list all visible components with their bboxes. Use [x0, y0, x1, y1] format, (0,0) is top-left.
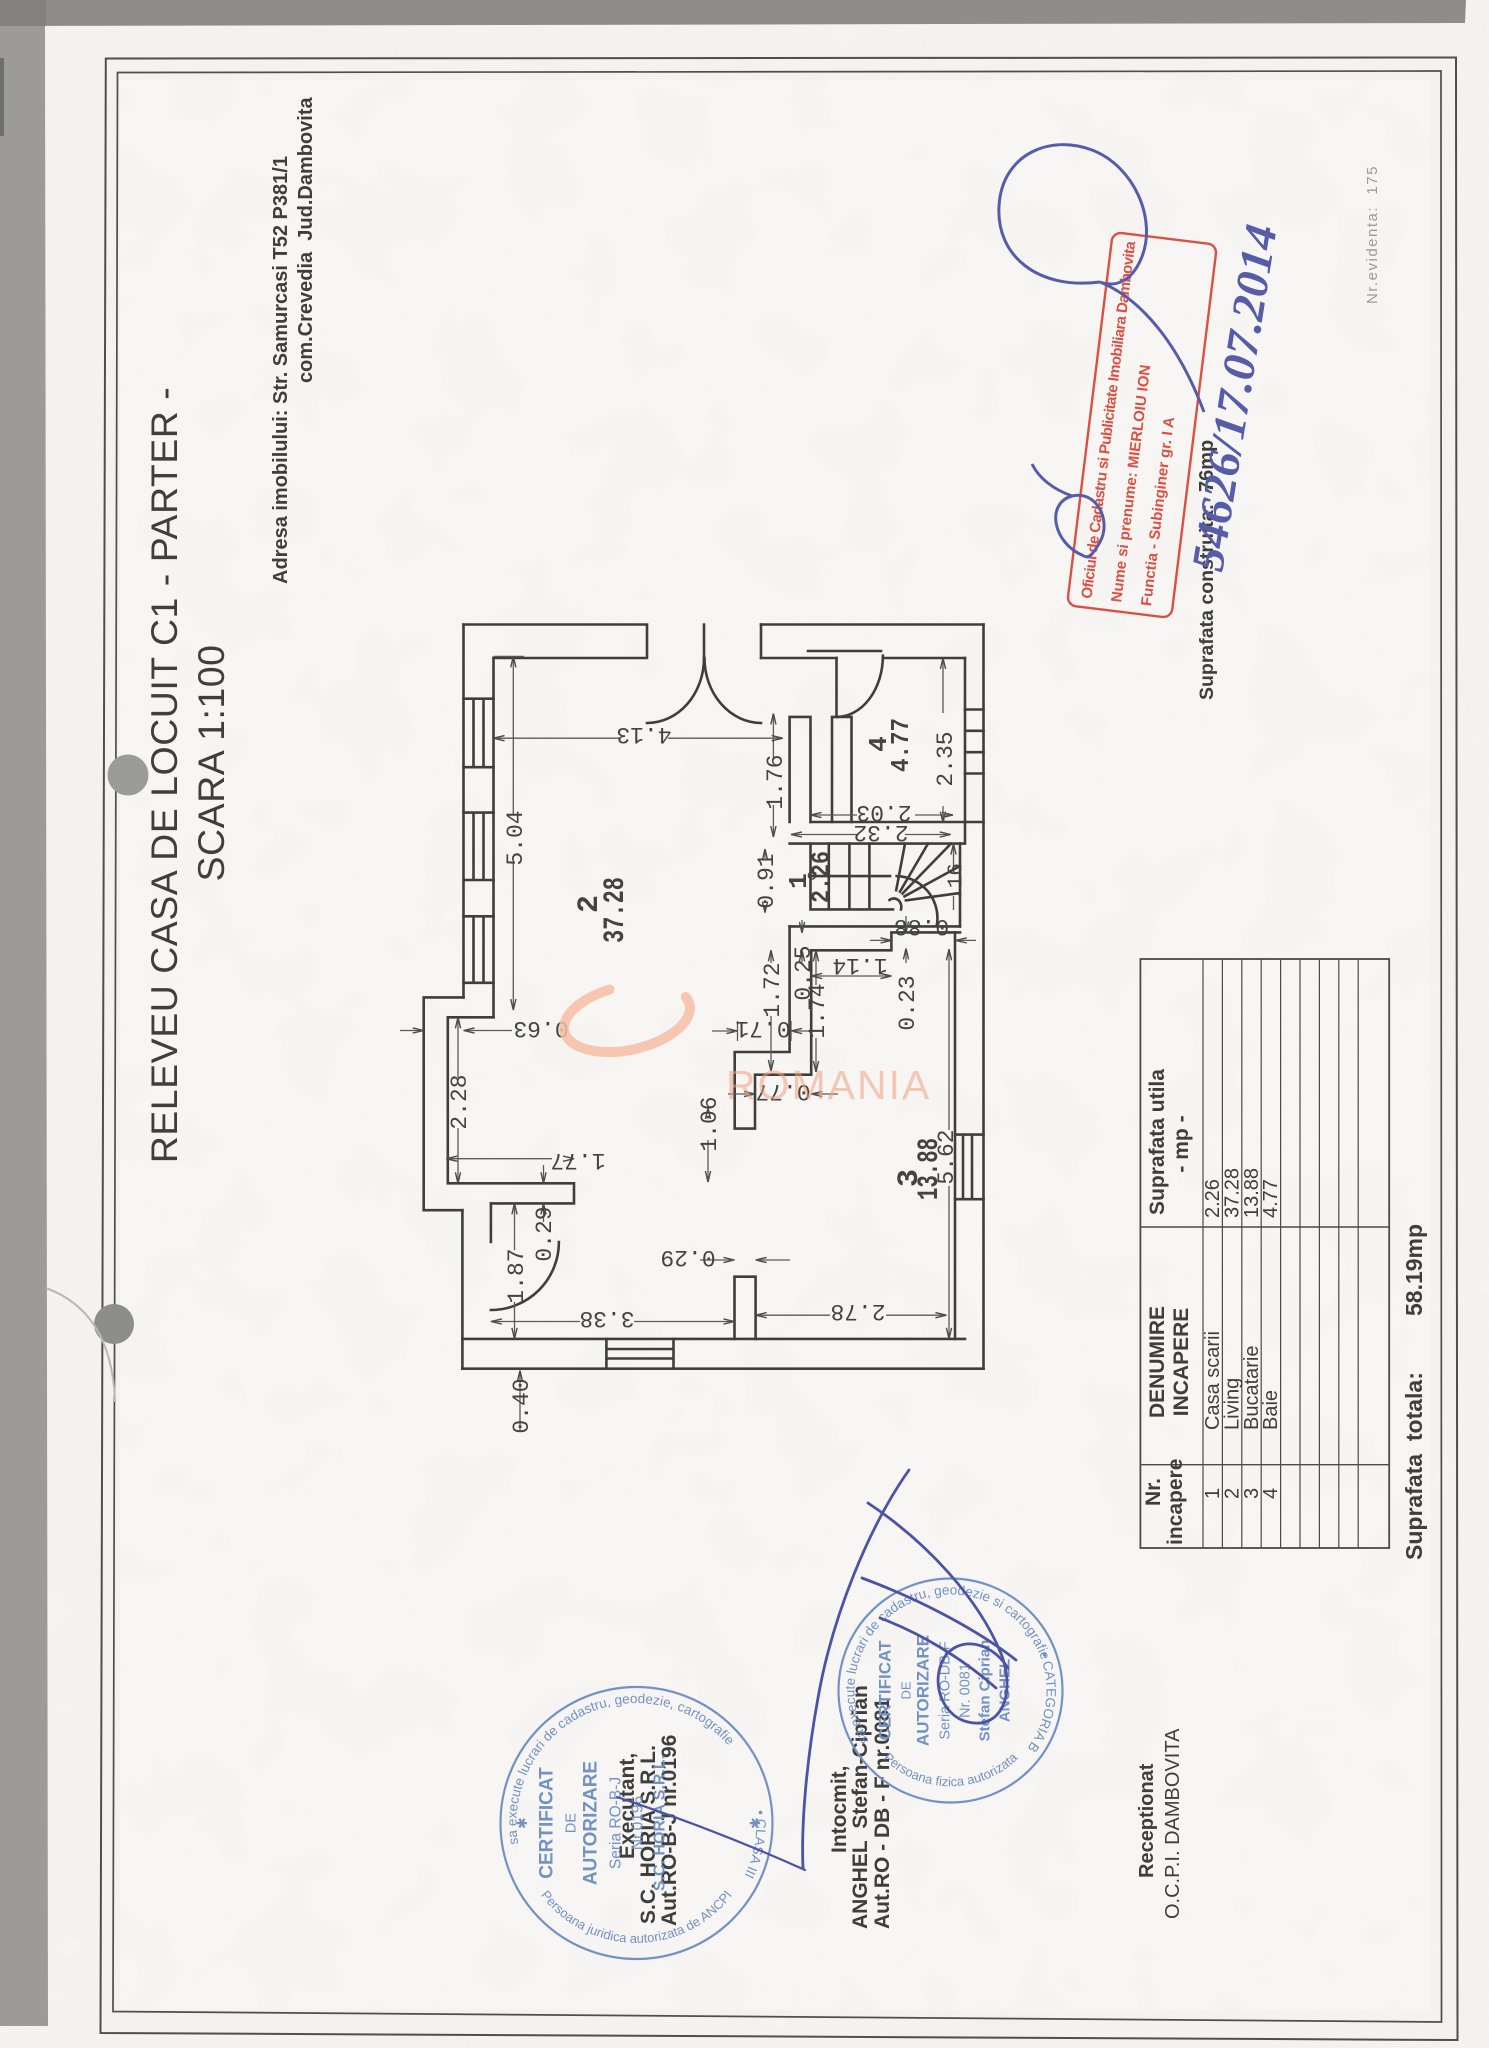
svg-text:1.14: 1.14 [832, 952, 887, 978]
svg-text:2.78: 2.78 [830, 1298, 885, 1324]
svg-text:1.77: 1.77 [550, 1147, 605, 1173]
svg-text:4.77: 4.77 [886, 718, 916, 772]
svg-text:0.29: 0.29 [532, 1206, 558, 1261]
svg-text:2.35: 2.35 [933, 731, 959, 786]
svg-text:1.06: 1.06 [697, 1096, 723, 1151]
svg-text:0.88: 0.88 [894, 913, 949, 939]
svg-text:0.23: 0.23 [895, 975, 921, 1030]
svg-text:1.74: 1.74 [805, 983, 831, 1038]
svg-text:2.26: 2.26 [806, 851, 836, 903]
svg-text:37.28: 37.28 [599, 877, 633, 943]
svg-text:1.76: 1.76 [763, 754, 789, 809]
svg-text:2.32: 2.32 [853, 819, 908, 845]
svg-text:0.40: 0.40 [509, 1378, 535, 1433]
svg-text:0.91: 0.91 [754, 853, 780, 908]
svg-text:1.87: 1.87 [504, 1248, 530, 1303]
svg-text:0.29: 0.29 [660, 1244, 715, 1270]
svg-text:.16: .16 [946, 863, 969, 901]
svg-text:5.04: 5.04 [503, 810, 529, 865]
svg-text:4.13: 4.13 [616, 721, 671, 747]
svg-text:13.88: 13.88 [913, 1138, 947, 1200]
svg-text:3.38: 3.38 [579, 1305, 634, 1331]
svg-text:0.71: 0.71 [735, 1015, 790, 1041]
svg-text:ROMANIA: ROMANIA [726, 1062, 931, 1108]
svg-text:1.72: 1.72 [760, 962, 786, 1017]
svg-text:2.28: 2.28 [447, 1074, 473, 1129]
